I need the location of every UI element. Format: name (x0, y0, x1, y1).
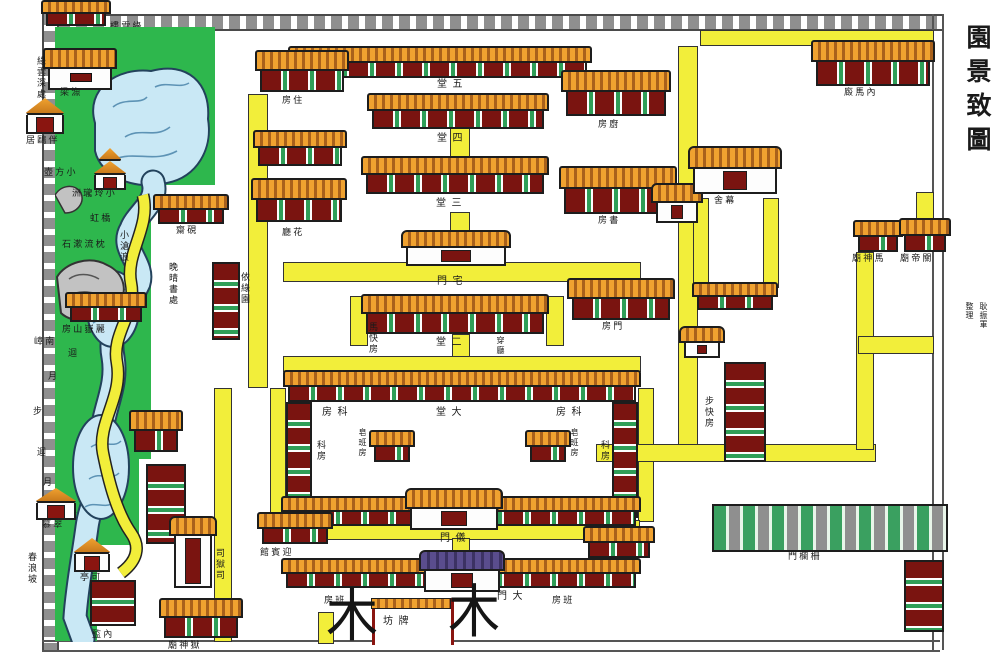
east-border (932, 14, 944, 650)
garden-main-hall (48, 48, 112, 90)
paifang-label: 坊牌 (383, 617, 414, 627)
siyusi-door (185, 538, 201, 584)
banouju-hut (26, 98, 64, 132)
tower-roof (41, 0, 111, 14)
mushe-gate (693, 146, 777, 194)
yimen-door (441, 511, 467, 526)
mushe-body (693, 169, 777, 194)
mashenmiao-body (858, 237, 898, 252)
huating-building (256, 178, 342, 222)
tree-east: 木 (448, 585, 500, 642)
yimen-body (410, 509, 498, 530)
left-mid-roof (253, 130, 347, 148)
zhalanmen-fence (712, 504, 948, 552)
siyusi-label: 司獄司 (215, 548, 224, 581)
yingbinguan-body (262, 529, 328, 544)
mashenmiao-building (858, 220, 898, 252)
left-small-body (134, 431, 178, 452)
chufang-building (566, 70, 666, 116)
liyueshanfang-building (70, 292, 142, 322)
datang-body (288, 387, 636, 402)
huating-body (256, 200, 342, 222)
guandimiao-label: 廟帝關 (900, 254, 934, 263)
yanzhai-label: 齋硯 (176, 226, 199, 235)
damen-label: 門大 (497, 592, 528, 602)
neijian-body (90, 580, 136, 626)
linglongzhou-label: 洲瓏玲小 (72, 189, 117, 198)
street-gate-b-body (684, 343, 720, 358)
street-gate-b-roof (679, 326, 725, 343)
yanzhai-body (158, 210, 224, 224)
mushe-south-building (697, 282, 773, 310)
mucui-pavilion (36, 488, 76, 518)
southeast-body (904, 560, 944, 632)
left-mid-body (258, 148, 342, 166)
tree-west: 木 (326, 589, 378, 646)
shufang-label: 房書 (598, 216, 621, 225)
street-gate-b (684, 326, 720, 358)
bukuaifang-label: 步快房 (704, 396, 713, 429)
yanzhai-roof (153, 194, 229, 210)
zhenliu-label: 石漱流枕 (62, 240, 107, 249)
tudici-building (588, 526, 650, 558)
siyusi-roof (169, 516, 217, 536)
sitang-roof (367, 93, 549, 111)
street-gate-a-body (656, 203, 698, 223)
yushenmiao-label: 廟神獄 (168, 641, 202, 650)
walk-char-1: 迴 (68, 349, 77, 358)
bukuaifang-body (724, 362, 766, 462)
santang-label: 堂三 (436, 199, 467, 209)
ertang-hall (366, 294, 544, 334)
linglongzhou-pagoda (94, 148, 126, 186)
yushenmiao-body (164, 618, 238, 638)
santang-roof (361, 156, 549, 175)
kefang-nw-label: 房科 (322, 408, 353, 418)
liyueshanfang-roof (65, 292, 147, 308)
zhalanmen-label: 門欄柵 (788, 552, 822, 561)
bridge-label: 虹橋 (90, 214, 113, 223)
walk-char-4: 迴 (37, 448, 46, 457)
zaobanfang-west-label: 皂班房 (358, 428, 366, 458)
zhaimen-label: 門宅 (437, 277, 468, 287)
datang-label: 堂大 (436, 408, 467, 418)
ertang-label: 堂二 (436, 338, 467, 348)
left-small-building (134, 410, 178, 452)
chufang-body (566, 92, 666, 116)
mushe-east-path (763, 198, 779, 288)
zaobanfang-west-body (374, 447, 410, 462)
menfang-body (572, 299, 670, 320)
chufang-roof (561, 70, 671, 92)
deep-label: 綠雲深處 (36, 56, 45, 100)
garden-main-hall-roof (43, 48, 117, 69)
banouju-door (36, 117, 53, 133)
zhaimen-door (441, 250, 471, 262)
zhaimen-body (406, 248, 506, 266)
zaobanfang-west (374, 430, 410, 462)
shanfang-label: 房山嶽麗 (62, 325, 107, 334)
street-gate-a-door (671, 205, 683, 219)
paifang-beam (371, 598, 451, 609)
map-canvas: 樓雲綠 綠雲深處 梁漁 居鷗伴 壺方小 洲瓏玲小 (0, 0, 1000, 663)
mucui-label: 慕翠 (42, 520, 65, 529)
zhufang-building (260, 50, 344, 92)
walk-char-5: 月 (43, 478, 52, 487)
mashenmiao-roof (853, 220, 903, 237)
zaobanfang-east (530, 430, 566, 462)
tudici-roof (583, 526, 655, 543)
xiaofanghu-label: 壺方小 (44, 168, 78, 177)
mushe-south-roof (692, 282, 778, 297)
ertang-body (366, 314, 544, 334)
santang-hall (366, 156, 544, 194)
neijian-building (90, 580, 136, 626)
sitang-body (372, 111, 544, 129)
banouju-body (26, 115, 64, 134)
hall-plaque (70, 73, 91, 83)
canglang-label: 小滄浪 (119, 230, 128, 263)
yushenmiao-roof (159, 598, 243, 618)
sitang-label: 堂四 (437, 134, 468, 144)
pagoda-roof-low (94, 161, 126, 175)
sitang-hall (372, 93, 544, 129)
keting-roof (74, 538, 110, 554)
zaobanfang-east-roof (525, 430, 571, 447)
yanzhai-building (158, 194, 224, 224)
tower-body (46, 14, 106, 26)
zhufang-label: 房住 (282, 96, 305, 105)
yuliang-label: 梁漁 (60, 88, 83, 97)
mushe-label: 舍幕 (714, 196, 737, 205)
neijian-label: 監內 (92, 630, 115, 639)
kefang-west-label: 科房 (316, 440, 325, 462)
keting-body (74, 554, 110, 572)
tudici-body (588, 543, 650, 558)
santang-body (366, 175, 544, 194)
damen-roof (419, 550, 505, 571)
guandimiao-body (904, 236, 946, 252)
zhaimen-roof (401, 230, 511, 248)
keting-door (84, 556, 100, 571)
mushe-door (723, 171, 748, 190)
walk-char-2: 月 (48, 372, 57, 381)
credit-name: 耿振軍 (978, 302, 989, 342)
guandimiao-roof (899, 218, 951, 236)
yimen-roof (405, 488, 503, 509)
mucui-roof (36, 488, 76, 503)
zaobanfang-east-body (530, 447, 566, 462)
corridor-body (212, 262, 240, 340)
map-title: 東昌府署與古依綠園景致圖 (958, 24, 1000, 324)
huating-roof (251, 178, 347, 200)
zhufang-roof (255, 50, 349, 71)
siyusi-gate (174, 516, 212, 588)
yimen-label: 門儀 (440, 534, 471, 544)
left-small-roof (129, 410, 183, 431)
neimajiu-roof (811, 40, 935, 62)
temple-east-stub (858, 336, 934, 354)
yingbinguan-building (262, 512, 328, 544)
guandimiao-building (904, 218, 946, 252)
yingbinguan-label: 館賓迎 (260, 548, 294, 557)
datang-hall (288, 370, 636, 402)
left-mid-building (258, 130, 342, 166)
wutang-label: 堂五 (437, 80, 468, 90)
walk-char-3: 步 (33, 407, 42, 416)
chunlangpo-label: 春浪坡 (27, 552, 36, 585)
bukuaifang-building (724, 362, 766, 462)
lvyunlou-tower (46, 0, 106, 26)
zaobanfang-west-roof (369, 430, 415, 447)
datang-roof (283, 370, 641, 387)
mushe-roof (688, 146, 782, 169)
menfang-roof (567, 278, 675, 299)
banouju-roof (26, 98, 64, 115)
yingbinguan-roof (257, 512, 333, 529)
zhufang-body (260, 71, 344, 92)
ertang-roof (361, 294, 549, 314)
menfang-label: 房門 (602, 322, 625, 331)
yilvyuan-label: 依綠園 (240, 272, 249, 305)
pagoda-roof-top (99, 148, 121, 161)
kefang-ne-label: 房科 (556, 408, 587, 418)
banouju-label: 居鷗伴 (26, 136, 60, 145)
keting-pavilion (74, 538, 110, 570)
neimajiu-building (816, 40, 930, 86)
banfang-east-label: 房班 (552, 596, 575, 605)
kefang-east-label: 科房 (600, 440, 609, 462)
street-gate-b-door (697, 345, 707, 354)
liyueshanfang-body (70, 308, 142, 322)
neimajiu-label: 廄馬內 (844, 88, 878, 97)
menfang-building (572, 278, 670, 320)
nanzhang-label: 嶂南 (34, 337, 57, 346)
makuaifang-label: 馬快房 (368, 322, 377, 355)
corridor-building (212, 262, 240, 340)
mashenmiao-label: 廟神馬 (852, 254, 886, 263)
zhaimen-gate (406, 230, 506, 266)
mucui-door (47, 505, 65, 519)
yushenmiao-building (164, 598, 238, 638)
huating-label: 廳花 (282, 228, 305, 237)
siyusi-body (174, 536, 212, 588)
yimen-gate (410, 488, 498, 530)
neimajiu-body (816, 62, 930, 86)
chufang-label: 房廚 (598, 120, 621, 129)
credit-role: 整理 (964, 302, 975, 332)
chuanting-label: 穿廳 (496, 336, 504, 356)
zaobanfang-east-label: 皂班房 (570, 428, 578, 458)
mucui-body (36, 503, 76, 520)
street-gate-a (656, 183, 698, 223)
wanqing-label: 晚晴書處 (168, 262, 177, 306)
paifang-arch: 坊牌 (372, 598, 454, 645)
southeast-building (904, 560, 944, 632)
mushe-south-body (697, 297, 773, 310)
